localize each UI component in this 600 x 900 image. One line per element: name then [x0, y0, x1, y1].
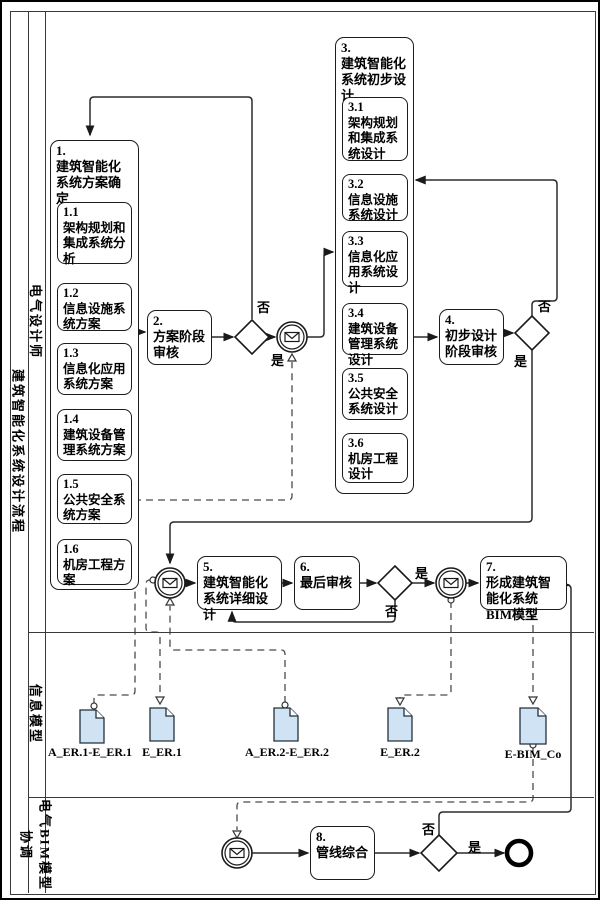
lane-title-electrical-designer: 电气设计师: [28, 11, 45, 632]
lane-divider-2: [28, 797, 594, 798]
task-number: 1.6: [63, 542, 126, 558]
gateway1-yes-label: 是: [271, 350, 284, 369]
task-label: 建筑智能化系统详细设计: [203, 575, 268, 622]
subtask-1-6[interactable]: 1.6 机房工程方案: [57, 539, 132, 585]
gateway1-no-label: 否: [257, 297, 270, 316]
subtask-3-2[interactable]: 3.2 信息设施系统设计: [342, 174, 408, 221]
task-number: 7.: [486, 559, 561, 575]
task-label: 信息设施系统方案: [63, 302, 126, 332]
task-number: 1.4: [63, 412, 126, 428]
document-label-e-er1: E_ER.1: [102, 745, 222, 760]
task-number: 5.: [203, 559, 276, 575]
task-number: 3.: [341, 40, 408, 56]
task-number: 6.: [300, 559, 354, 575]
task-label: 信息化应用系统方案: [63, 362, 126, 392]
task-label: 机房工程设计: [348, 452, 398, 482]
task-label: 建筑设备管理系统方案: [63, 428, 126, 458]
task-number: 3.4: [348, 306, 402, 322]
task-label: 初步设计阶段审核: [445, 328, 497, 359]
task-number: 3.5: [348, 371, 402, 387]
task-label: 架构规划和集成系统分析: [63, 221, 126, 266]
pool-title: 建筑智能化系统设计流程: [10, 11, 28, 893]
task-number: 1.1: [63, 205, 126, 221]
subtask-1-3[interactable]: 1.3 信息化应用系统方案: [57, 343, 132, 395]
task-number: 4.: [445, 312, 498, 328]
task-number: 2.: [153, 313, 206, 329]
task-label: 最后审核: [300, 575, 352, 590]
gateway3-yes-label: 是: [415, 563, 428, 582]
gateway2-yes-label: 是: [514, 351, 527, 370]
document-label-a-er2-e-er2: A_ER.2-E_ER.2: [227, 745, 347, 760]
subtask-3-6[interactable]: 3.6 机房工程设计: [342, 433, 408, 483]
task-label: 建筑设备管理系统设计: [348, 322, 398, 367]
task-2-plan-stage-review[interactable]: 2. 方案阶段审核: [147, 310, 212, 365]
task-label: 架构规划和集成系统设计: [348, 116, 398, 161]
task-number: 3.2: [348, 177, 402, 193]
task-number: 1.: [56, 143, 133, 159]
task-number: 3.1: [348, 100, 402, 116]
task-label: 信息设施系统设计: [348, 193, 398, 223]
task-label: 信息化应用系统设计: [348, 250, 398, 295]
subtask-3-1[interactable]: 3.1 架构规划和集成系统设计: [342, 97, 408, 161]
lane-title-information-model: 信息模型: [28, 632, 45, 797]
gateway2-no-label: 否: [538, 296, 551, 315]
task-number: 3.6: [348, 436, 402, 452]
task-number: 1.5: [63, 477, 126, 493]
document-label-e-er2: E_ER.2: [340, 745, 460, 760]
task-number: 1.2: [63, 286, 126, 302]
task-4-preliminary-stage-review[interactable]: 4. 初步设计阶段审核: [439, 309, 504, 365]
task-label: 建筑智能化系统方案确定: [56, 159, 121, 206]
task-label: 公共安全系统方案: [63, 493, 126, 523]
task-number: 1.3: [63, 346, 126, 362]
gateway4-no-label: 否: [422, 819, 435, 838]
subtask-1-5[interactable]: 1.5 公共安全系统方案: [57, 474, 132, 524]
subtask-3-4[interactable]: 3.4 建筑设备管理系统设计: [342, 303, 408, 355]
bpmn-diagram: 建筑智能化系统设计流程 电气设计师 信息模型 电气BIM模型协调 1. 建筑智能…: [0, 0, 600, 900]
gateway3-no-label: 否: [385, 601, 398, 620]
task-label: 方案阶段审核: [153, 329, 205, 360]
task-8-pipeline-integration[interactable]: 8. 管线综合: [310, 826, 375, 880]
task-label: 公共安全系统设计: [348, 387, 398, 417]
lane-divider-1: [28, 632, 594, 633]
subtask-1-4[interactable]: 1.4 建筑设备管理系统方案: [57, 409, 132, 461]
subtask-3-5[interactable]: 3.5 公共安全系统设计: [342, 368, 408, 420]
task-label: 形成建筑智能化系统BIM模型: [486, 575, 551, 622]
document-label-e-bim-co: E-BIM_Co: [473, 747, 593, 762]
task-6-final-review[interactable]: 6. 最后审核: [294, 556, 360, 610]
gateway4-yes-label: 是: [468, 837, 481, 856]
task-number: 8.: [316, 829, 369, 845]
lane-title-bim-coordination: 电气BIM模型协调: [28, 797, 45, 893]
task-label: 管线综合: [316, 845, 368, 860]
task-7-form-bim-model[interactable]: 7. 形成建筑智能化系统BIM模型: [480, 556, 567, 610]
subtask-1-1[interactable]: 1.1 架构规划和集成系统分析: [57, 202, 132, 264]
task-number: 3.3: [348, 234, 402, 250]
task-label: 机房工程方案: [63, 558, 126, 588]
lane-title-divider: [45, 11, 46, 893]
task-5-detailed-design[interactable]: 5. 建筑智能化系统详细设计: [197, 556, 282, 610]
subtask-1-2[interactable]: 1.2 信息设施系统方案: [57, 283, 132, 331]
subtask-3-3[interactable]: 3.3 信息化应用系统设计: [342, 231, 408, 287]
